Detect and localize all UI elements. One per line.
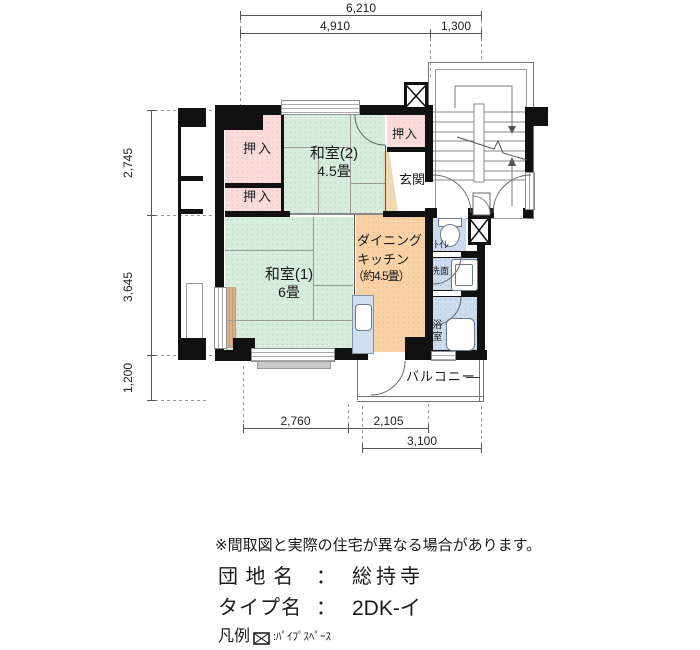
dim-left-middle: 3,645 [121, 257, 135, 317]
washbasin-inner [455, 264, 473, 286]
dim-tick [147, 400, 156, 401]
adjacent-structure-dash [181, 209, 203, 214]
label-dk-line3: （約4.5畳） [352, 270, 410, 282]
legend-text: :ﾊﾟｲﾌﾟｽﾍﾟｰｽ [273, 632, 331, 643]
tatami-line [227, 320, 353, 321]
genkan-door-gap [425, 182, 433, 208]
label-closet-lower-left: 押入 [243, 190, 273, 203]
label-washroom: 洗面 [431, 267, 449, 276]
balcony-right-line2 [483, 360, 484, 402]
type-name-colon: ： [316, 598, 336, 618]
dim-tick [147, 355, 156, 356]
dim-extension [430, 38, 431, 80]
dim-top-stair: 1,300 [430, 19, 482, 33]
balcony-bottom-line1 [357, 396, 484, 397]
adjacent-structure-line [178, 108, 181, 360]
dim-bottom-left: 2,760 [243, 414, 348, 428]
dim-line-top-split [240, 33, 482, 34]
label-genkan: 玄関 [399, 173, 425, 186]
type-name-label: タイプ名 [218, 598, 302, 618]
dim-left-upper: 2,745 [121, 133, 135, 193]
type-name-value: 2DK-イ [352, 598, 421, 619]
pipe-space-box-mid [468, 216, 491, 245]
pipe-space-icon [253, 632, 270, 645]
dim-extension [155, 400, 207, 401]
balcony-left-line [357, 360, 358, 400]
label-washitsu2-size: 4.5畳 [283, 164, 385, 178]
dim-line-bottom-2 [362, 448, 482, 449]
label-closet-right: 押入 [392, 128, 418, 140]
label-dk-line2: キッチン [357, 253, 409, 266]
window-bath [431, 351, 456, 361]
window-bottom-sill [257, 361, 331, 369]
dim-bottom-right: 3,100 [362, 434, 482, 448]
bathtub [446, 318, 475, 351]
balcony-bottom-line2 [357, 401, 484, 402]
bath-door-gap [433, 291, 461, 296]
wall-washitsu-boundary-left [225, 211, 290, 217]
dim-line-left [151, 110, 152, 401]
dim-top-total: 6,210 [240, 1, 482, 15]
label-toilet: ﾄｲﾚ [434, 241, 449, 251]
tatami-line [350, 183, 385, 184]
estate-name-label: 団 地 名 [218, 567, 294, 587]
balcony-right-line1 [479, 360, 480, 402]
room-divider-line [385, 145, 386, 213]
label-balcony: バルコニー [406, 370, 476, 383]
dim-line-bottom-1 [243, 428, 429, 429]
dim-tick [147, 215, 156, 216]
adjacent-structure-top [178, 108, 206, 127]
pipe-space-box-top [404, 82, 428, 110]
balcony-door-arc [371, 361, 405, 395]
label-closet-upper-left: 押入 [243, 142, 273, 155]
legend-label: 凡例 [218, 629, 250, 645]
estate-name-value: 総持寺 [352, 567, 424, 587]
label-washitsu1-size: 6畳 [225, 285, 353, 299]
estate-name-colon: ： [316, 567, 336, 587]
dim-top-main: 4,910 [240, 19, 430, 33]
adjacent-structure-dash [181, 176, 203, 181]
entry-door-gap-right [494, 208, 523, 218]
window-top [281, 100, 360, 115]
label-washitsu1: 和室(1) [225, 267, 353, 282]
window-bottom [251, 348, 335, 362]
label-bath: 浴室 [430, 319, 440, 343]
tatami-line [225, 250, 313, 251]
fusuma-line [290, 213, 383, 215]
wall-washitsu-boundary-right [383, 211, 425, 217]
stair-landing-inner [435, 69, 527, 219]
wall-closet-edge [281, 113, 284, 213]
dim-left-lower: 1,200 [121, 348, 135, 408]
kitchen-sink [355, 304, 372, 331]
dim-bottom-mid: 2,105 [348, 414, 429, 428]
wall-closet-divider [225, 183, 283, 188]
dim-tick [147, 110, 156, 111]
disclaimer-note: ※間取図と実際の住宅が異なる場合があります。 [215, 538, 541, 553]
label-dk-line1: ダイニング・ [357, 234, 435, 247]
dim-line-top-total [240, 15, 482, 16]
floor-plan: 6,210 4,910 1,300 2,745 3,645 1,200 2,76… [0, 0, 700, 650]
adjacent-structure-bottom [178, 338, 206, 360]
wall-stair-right-stub [533, 107, 548, 126]
toilet-door-gap [433, 252, 461, 257]
wall-closet-right-bottom [387, 147, 425, 152]
entry-door-gap-left [437, 208, 468, 218]
window-stairwell [525, 172, 535, 210]
wall-wet-right [477, 245, 485, 355]
label-washitsu2: 和室(2) [283, 146, 385, 161]
